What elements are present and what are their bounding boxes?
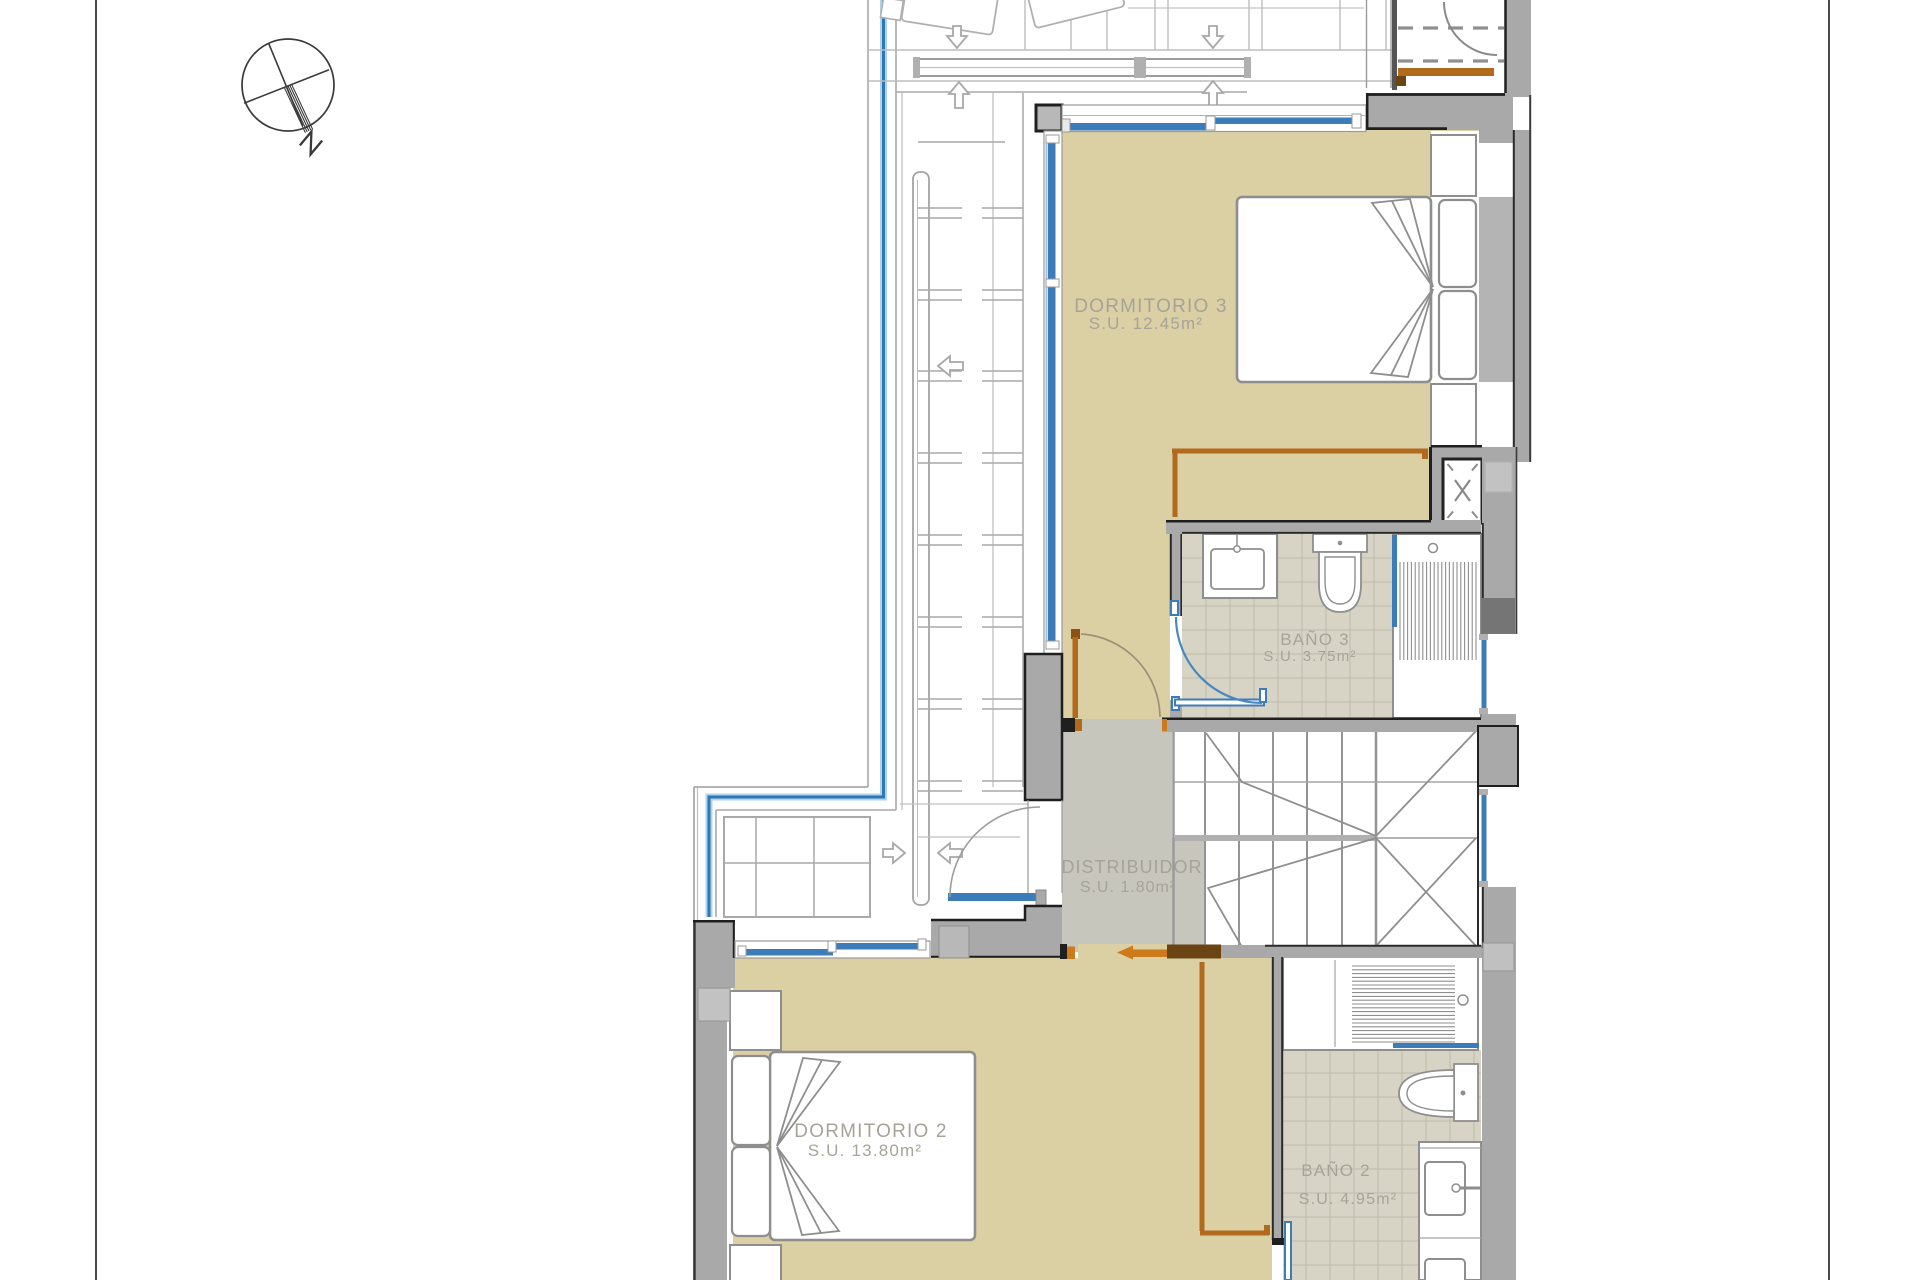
svg-text:BAÑO 3: BAÑO 3 [1280, 630, 1350, 649]
svg-text:S.U. 13.80m²: S.U. 13.80m² [808, 1141, 923, 1160]
svg-text:BAÑO 2: BAÑO 2 [1301, 1161, 1371, 1180]
svg-text:S.U. 3.75m²: S.U. 3.75m² [1263, 648, 1356, 665]
svg-text:S.U. 12.45m²: S.U. 12.45m² [1089, 314, 1204, 333]
svg-text:DISTRIBUIDOR: DISTRIBUIDOR [1061, 857, 1202, 877]
svg-text:S.U. 4.95m²: S.U. 4.95m² [1299, 1191, 1398, 1208]
svg-text:DORMITORIO 2: DORMITORIO 2 [794, 1121, 947, 1142]
svg-text:S.U. 1.80m²: S.U. 1.80m² [1080, 879, 1176, 896]
